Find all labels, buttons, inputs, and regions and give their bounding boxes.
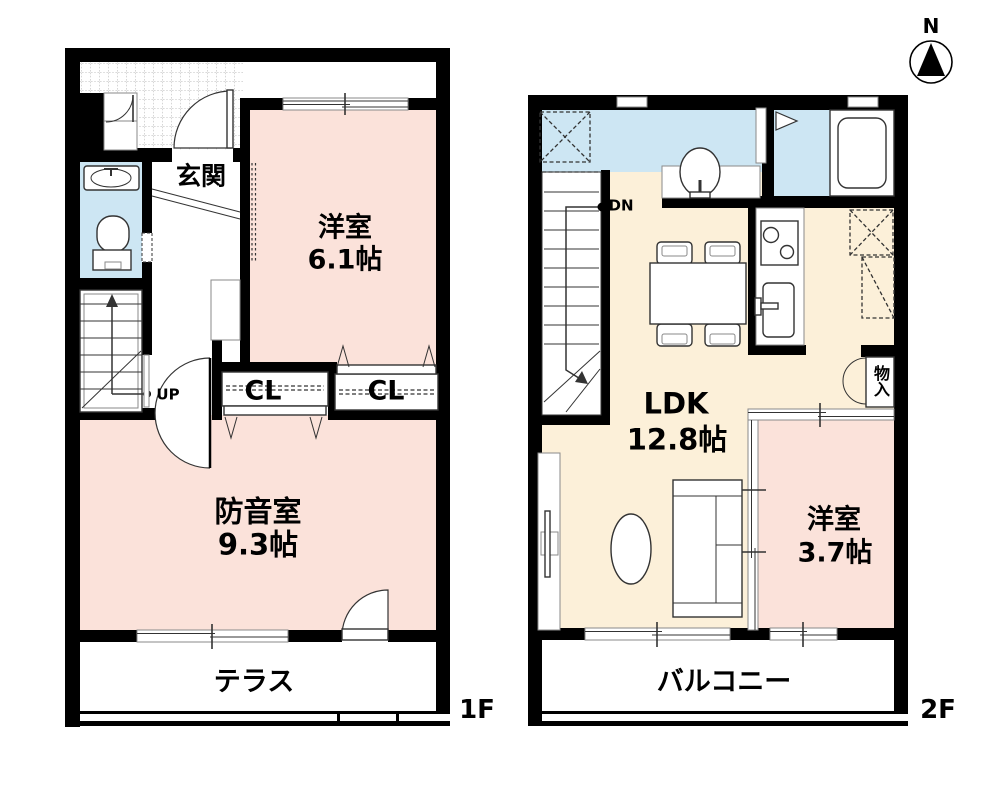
kitchen-sink xyxy=(763,283,794,337)
soundproof-room-label: 防音室 xyxy=(214,498,301,527)
ldk-size: 12.8帖 xyxy=(627,426,728,455)
sofa xyxy=(673,480,742,617)
floor1-title: 1F xyxy=(459,697,495,723)
closet-left-label: CL xyxy=(244,378,281,405)
western-room-2f-label: 洋室 xyxy=(807,507,861,534)
kitchen-faucet xyxy=(755,298,761,315)
floor2-plan xyxy=(528,95,908,726)
soundproof-room-size: 9.3帖 xyxy=(218,531,298,560)
terrace-label: テラス xyxy=(214,669,294,696)
toilet-door xyxy=(142,233,152,262)
stove-burner xyxy=(781,246,794,259)
toilet-vanity xyxy=(84,166,139,190)
entrance-label: 玄関 xyxy=(176,164,226,189)
stairs-up-label: UP xyxy=(156,388,179,403)
floor2-title: 2F xyxy=(920,697,956,723)
floorplan-drawing xyxy=(0,0,984,787)
ldk-label: LDK xyxy=(643,390,708,419)
side-table xyxy=(611,514,651,584)
porch-side-closet-door xyxy=(104,93,137,150)
closet-right-label: CL xyxy=(367,378,404,405)
entrance-step-line xyxy=(152,189,240,219)
staircase-2f xyxy=(542,172,607,415)
stove-burner xyxy=(764,228,779,243)
dining-table xyxy=(650,263,746,324)
western-room-2f-size: 3.7帖 xyxy=(798,540,873,567)
kitchen-faucet-spout xyxy=(761,303,778,309)
stairs-dn-label: DN xyxy=(608,199,633,214)
shoe-cabinet xyxy=(211,280,240,340)
western-room-1f-size: 6.1帖 xyxy=(308,247,383,274)
western-room-1f-label: 洋室 xyxy=(318,215,372,242)
compass-north-label: N xyxy=(923,16,940,36)
toilet-fixture xyxy=(93,216,131,270)
storage-label: 物入 xyxy=(872,365,888,397)
floorplan-image: N 玄関 洋室 6.1帖 CL CL 防音室 9.3帖 テラス UP 1F LD… xyxy=(0,0,984,787)
washroom-floor xyxy=(538,110,762,172)
compass-icon xyxy=(910,41,952,83)
bathtub xyxy=(830,110,894,196)
balcony-label: バルコニー xyxy=(657,669,791,696)
staircase-1f xyxy=(80,290,151,412)
stair-start-dot-2f xyxy=(598,203,607,212)
tv xyxy=(545,511,550,577)
tv-board xyxy=(538,453,560,630)
kitchen-counter xyxy=(755,208,804,345)
